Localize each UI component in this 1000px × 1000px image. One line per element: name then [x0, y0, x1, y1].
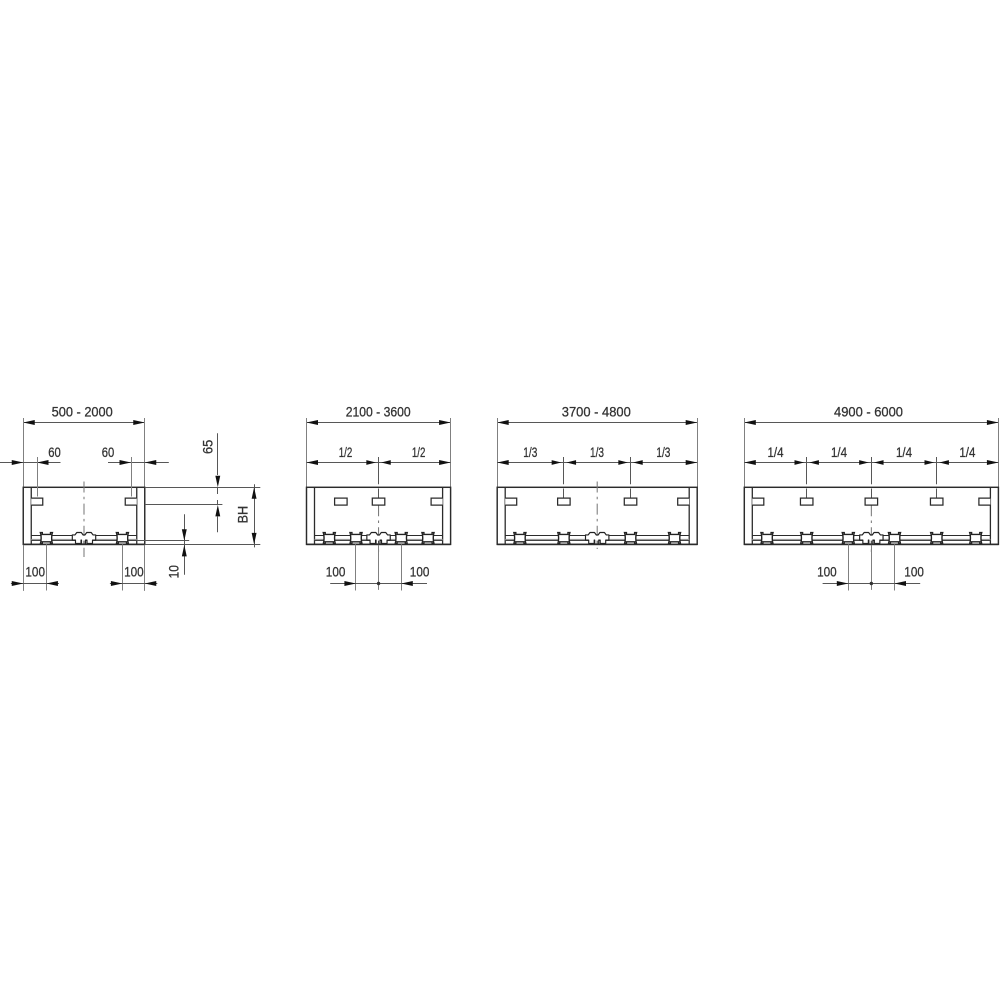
- svg-text:1/4: 1/4: [959, 445, 975, 460]
- svg-text:100: 100: [817, 565, 837, 580]
- svg-text:1/4: 1/4: [768, 445, 784, 460]
- svg-text:1/2: 1/2: [339, 445, 353, 460]
- svg-text:2100 - 3600: 2100 - 3600: [346, 405, 411, 420]
- svg-text:100: 100: [25, 565, 45, 580]
- svg-text:60: 60: [102, 445, 115, 460]
- svg-text:10: 10: [166, 565, 181, 579]
- svg-text:3700 - 4800: 3700 - 4800: [562, 405, 631, 420]
- svg-text:65: 65: [200, 439, 215, 454]
- svg-text:BH: BH: [236, 506, 251, 524]
- svg-text:4900 - 6000: 4900 - 6000: [834, 405, 903, 420]
- svg-text:1/3: 1/3: [590, 445, 604, 460]
- svg-text:1/4: 1/4: [831, 445, 847, 460]
- svg-text:1/3: 1/3: [523, 445, 537, 460]
- svg-text:500 - 2000: 500 - 2000: [52, 405, 113, 420]
- svg-text:1/4: 1/4: [896, 445, 912, 460]
- svg-text:1/3: 1/3: [656, 445, 670, 460]
- svg-text:100: 100: [124, 565, 144, 580]
- svg-text:100: 100: [904, 565, 924, 580]
- svg-text:100: 100: [326, 565, 346, 580]
- svg-text:60: 60: [48, 445, 61, 460]
- svg-text:1/2: 1/2: [412, 445, 426, 460]
- svg-text:100: 100: [410, 565, 430, 580]
